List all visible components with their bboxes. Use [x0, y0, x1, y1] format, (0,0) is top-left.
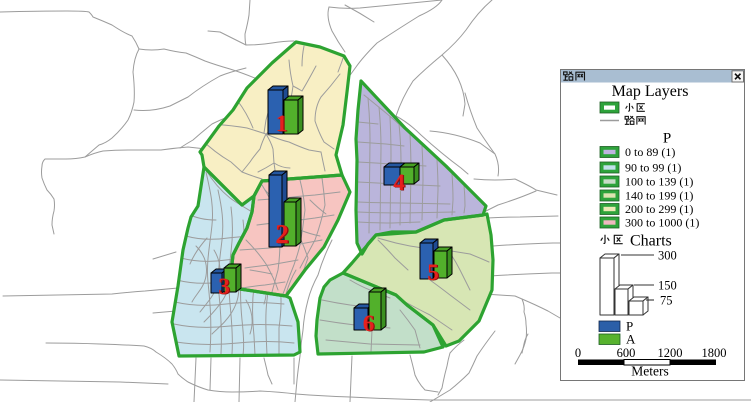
svg-text:Charts: Charts [630, 233, 672, 250]
svg-text:1200: 1200 [658, 346, 683, 360]
svg-text:Map Layers: Map Layers [612, 83, 689, 100]
svg-text:300 to 1000 (1): 300 to 1000 (1) [625, 215, 699, 229]
svg-text:4: 4 [393, 170, 405, 195]
svg-text:2: 2 [275, 219, 289, 249]
svg-text:1800: 1800 [702, 346, 727, 360]
svg-text:5: 5 [427, 260, 439, 285]
svg-text:75: 75 [660, 294, 673, 308]
svg-text:300: 300 [658, 249, 677, 263]
svg-text:140 to 199 (1): 140 to 199 (1) [625, 188, 693, 202]
svg-text:6: 6 [363, 311, 375, 336]
svg-text:600: 600 [617, 346, 636, 360]
svg-text:A: A [626, 332, 636, 347]
svg-text:0: 0 [575, 346, 581, 360]
svg-text:1: 1 [276, 111, 288, 136]
svg-text:0 to 89 (1): 0 to 89 (1) [625, 145, 675, 159]
svg-text:90 to 99 (1): 90 to 99 (1) [625, 160, 681, 174]
svg-text:Meters: Meters [631, 364, 669, 379]
svg-text:3: 3 [218, 274, 230, 299]
svg-text:100 to 139 (1): 100 to 139 (1) [625, 174, 693, 188]
svg-text:200 to 299 (1): 200 to 299 (1) [625, 202, 693, 216]
svg-text:150: 150 [658, 279, 677, 293]
